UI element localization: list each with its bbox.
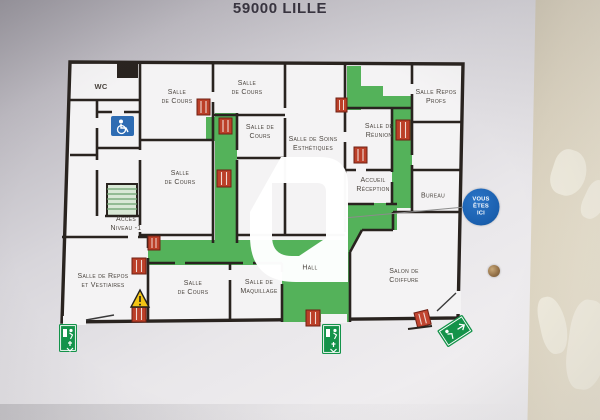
exit-sign-icon [59,324,77,352]
floor-plan-drawing [0,0,600,420]
exit-sign-icon [322,324,341,354]
screw-hole [488,265,500,277]
evacuation-plan-photo: 59000 LILLE [0,0,600,420]
wall-column [117,61,138,78]
stairs-icon [107,184,137,216]
you-are-here-badge: VOUS ÊTES ICI [463,189,500,226]
accessibility-icon [111,116,134,136]
